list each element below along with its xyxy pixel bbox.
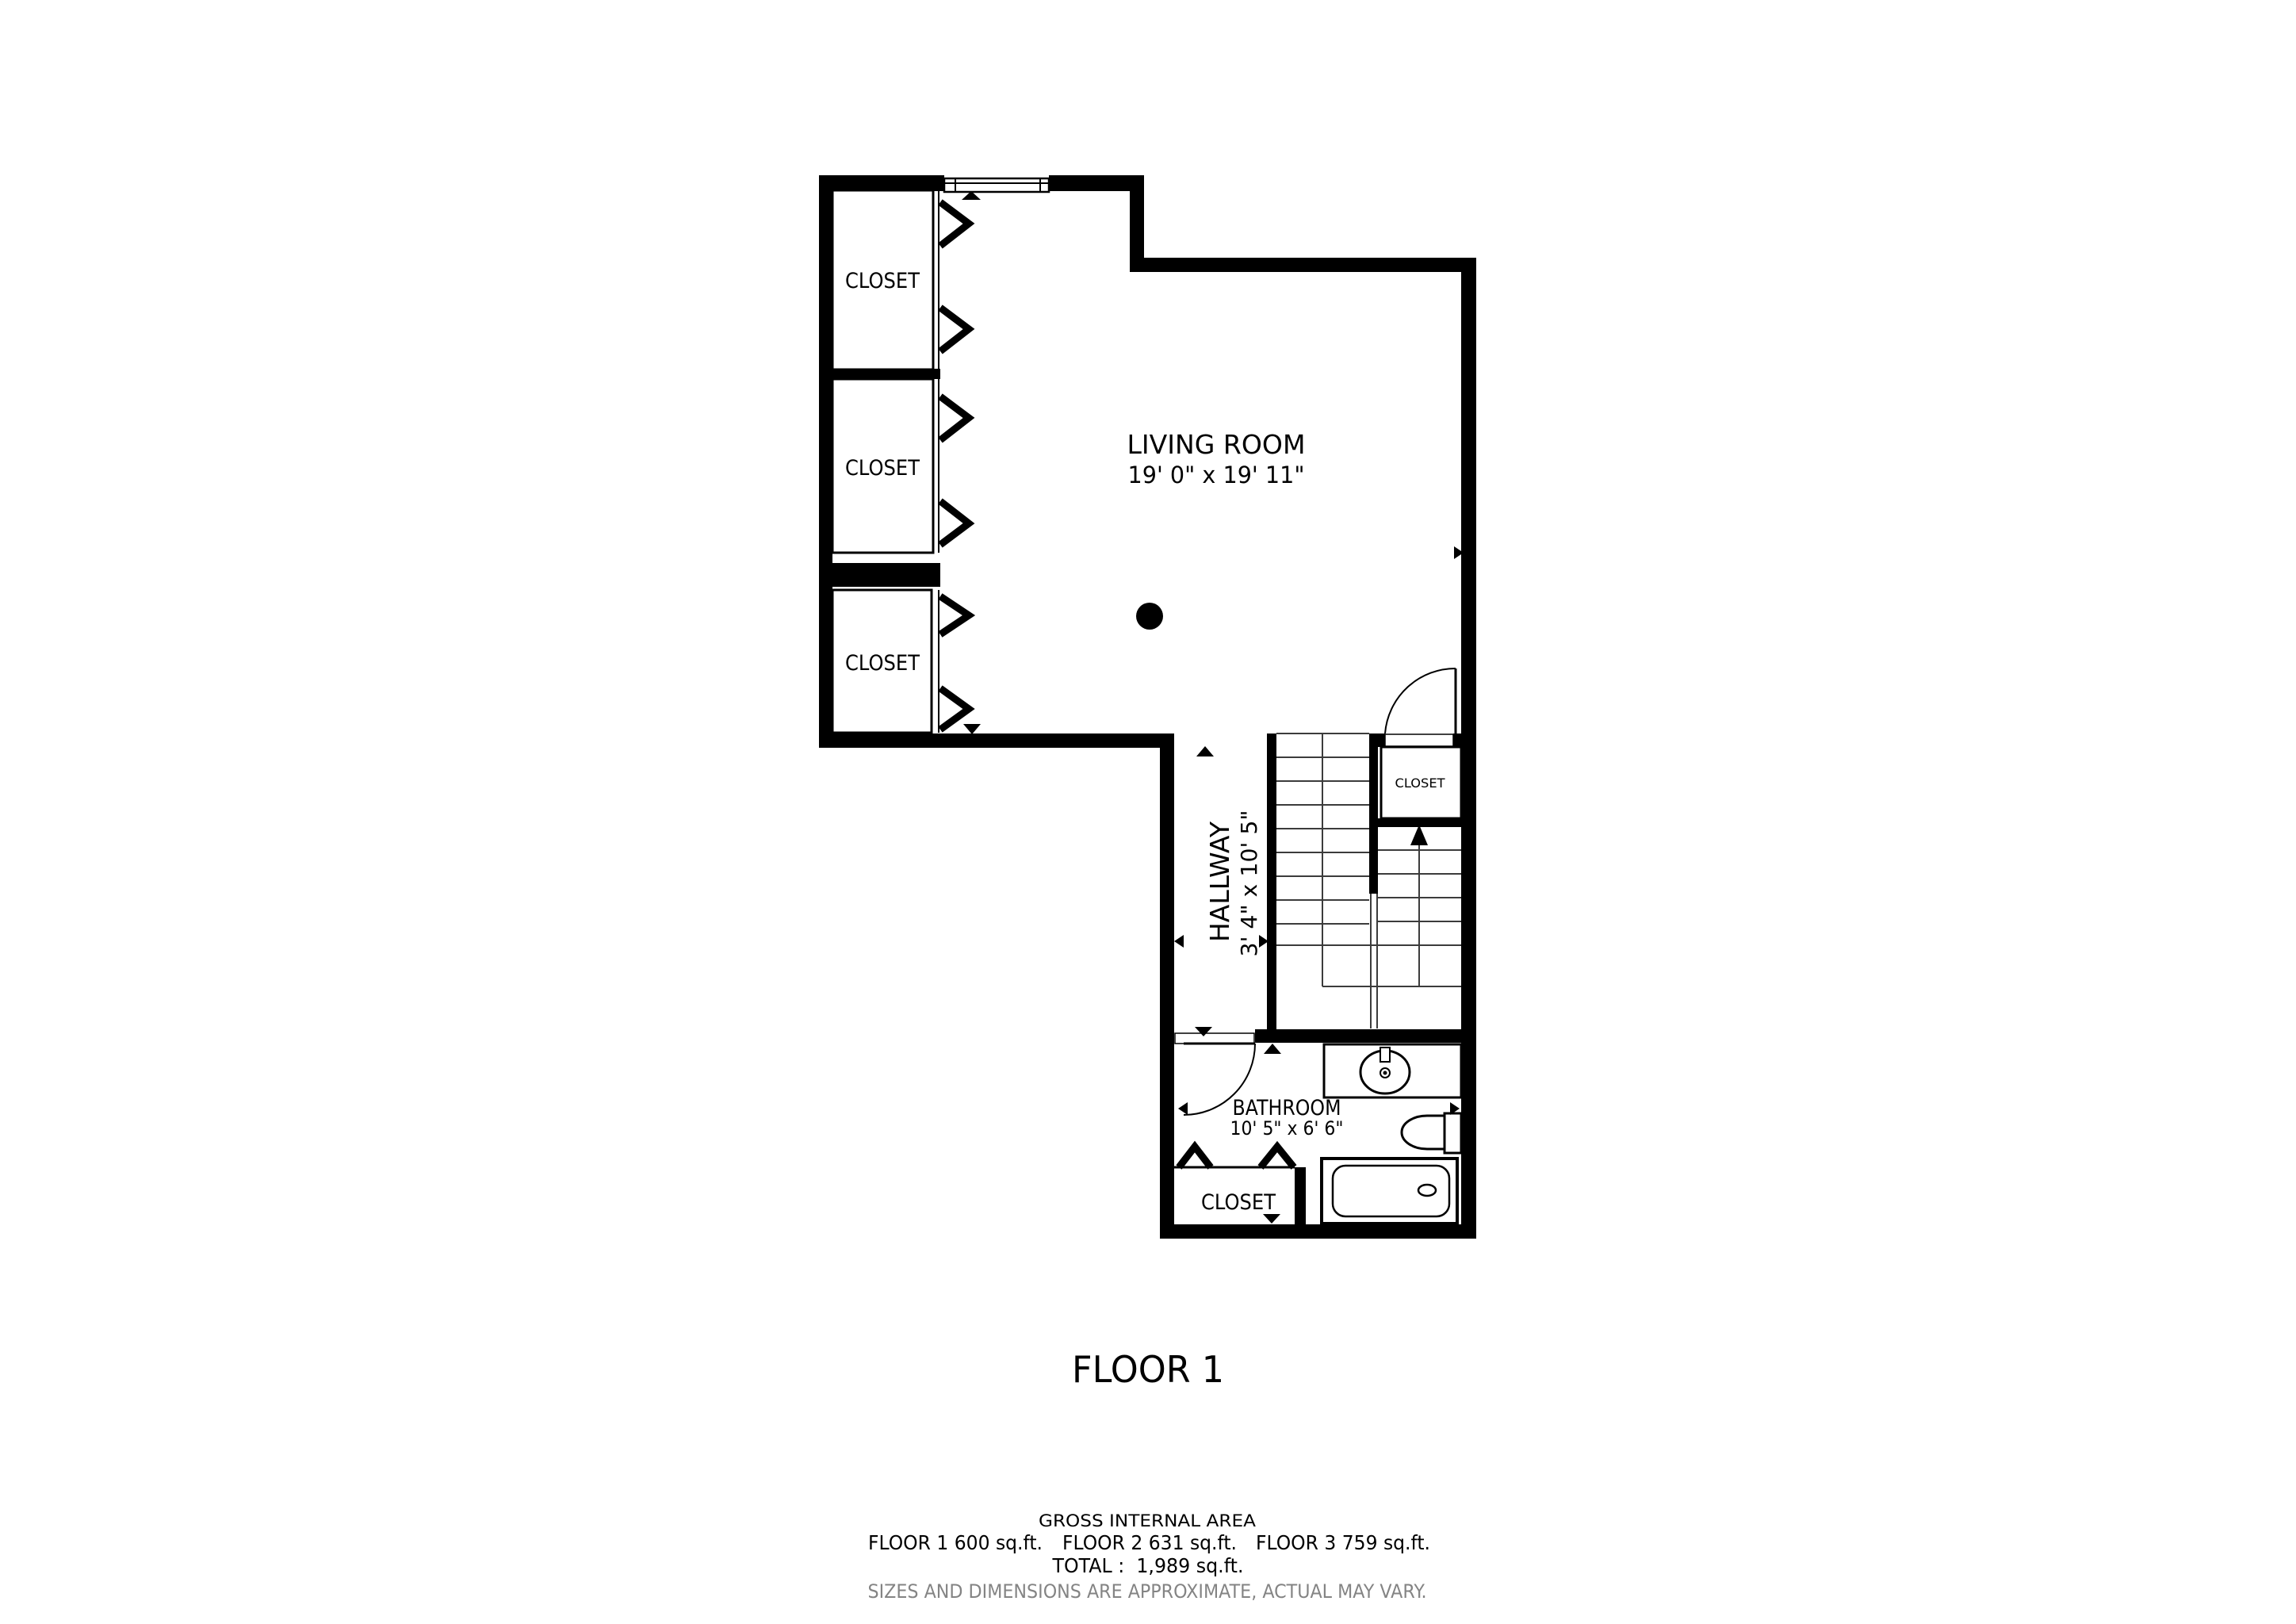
bifold-door-icon [940,688,969,730]
wall-step-vertical [1130,175,1144,272]
bifold-door-icon [940,308,969,351]
footer-total: TOTAL : 1,989 sq.ft. [1052,1554,1244,1577]
bifold-door-icon [1179,1147,1211,1167]
wall-bathcloset-right [1295,1167,1306,1225]
floor-plan: CLOSET CLOSET CLOSET LIVING ROOM 19' 0" … [0,0,2296,1624]
hallway-entry-marker-icon [1196,746,1214,756]
bifold-door-icon [940,396,969,440]
bath-closet-marker-icon [1263,1214,1280,1224]
sink-drain-center [1383,1071,1387,1075]
wall-top-left [819,175,944,191]
footer-floor2-area: FLOOR 2 631 sq.ft. [1062,1531,1237,1554]
wall-left [819,175,832,748]
bathroom-width-arrow-left-icon [1178,1102,1188,1115]
footer-disclaimer: SIZES AND DIMENSIONS ARE APPROXIMATE, AC… [868,1580,1427,1603]
sink [1324,1044,1461,1097]
footer-floor1-area: FLOOR 1 600 sq.ft. [868,1531,1043,1554]
wall-stairscloset-stub [1378,733,1385,747]
footer-title: GROSS INTERNAL AREA [1039,1511,1257,1530]
bifold-door-icon [940,596,969,634]
living-room-label: LIVING ROOM [1127,429,1306,460]
bathroom-entry-marker-icon [1264,1044,1281,1054]
bathtub [1322,1159,1457,1224]
window-frame [944,178,1049,192]
wall-closet2-separator [819,563,940,587]
bathtub-drain [1418,1185,1436,1196]
window [944,178,1049,192]
footer: GROSS INTERNAL AREA FLOOR 1 600 sq.ft. F… [868,1511,1431,1603]
ceiling-light-icon [1136,603,1163,630]
stairs-closet-label: CLOSET [1395,776,1445,791]
hallway-label: HALLWAY [1204,821,1235,942]
livingroom-marker-icon [963,724,981,734]
sink-faucet [1380,1048,1390,1062]
wall-stairs-left [1267,733,1276,1043]
wall-hallway-left [1160,733,1174,1239]
closet-lower-label: CLOSET [845,651,920,676]
toilet-tank [1445,1113,1461,1153]
footer-floor3-area: FLOOR 3 759 sq.ft. [1256,1531,1430,1554]
bathroom-dims: 10' 5" x 6' 6" [1230,1117,1344,1139]
bifold-door-icon [1261,1147,1294,1167]
wall-bottom [1160,1224,1476,1239]
wall-right [1461,258,1476,1239]
bifold-door-icon [940,202,969,246]
wall-bathroom-top [1255,1029,1461,1043]
floor-title: FLOOR 1 [1072,1348,1224,1391]
hallway-dims: 3' 4" x 10' 5" [1236,810,1262,957]
stairs-closet-threshold [1385,734,1453,746]
toilet-bowl [1402,1116,1445,1149]
stairs-closet-door-swing [1385,668,1456,733]
closet-top-label: CLOSET [845,269,920,293]
toilet [1402,1113,1461,1153]
wall-stairscloset-post [1453,733,1461,747]
bath-closet-label: CLOSET [1201,1190,1276,1215]
stair-up-arrow-icon [1410,825,1428,845]
wall-upper-right-horizontal [1144,258,1476,272]
bathroom-door-marker-icon [1195,1027,1212,1036]
bathroom-door-threshold [1175,1033,1254,1044]
bifold-door-icon [940,501,969,545]
wall-stairs-divider [1369,733,1378,894]
closet-middle-label: CLOSET [845,456,920,481]
hallway-width-arrow-left-icon [1174,935,1184,948]
wall-livingroom-bottom [819,733,1174,748]
living-room-dims: 19' 0" x 19' 11" [1128,462,1305,488]
